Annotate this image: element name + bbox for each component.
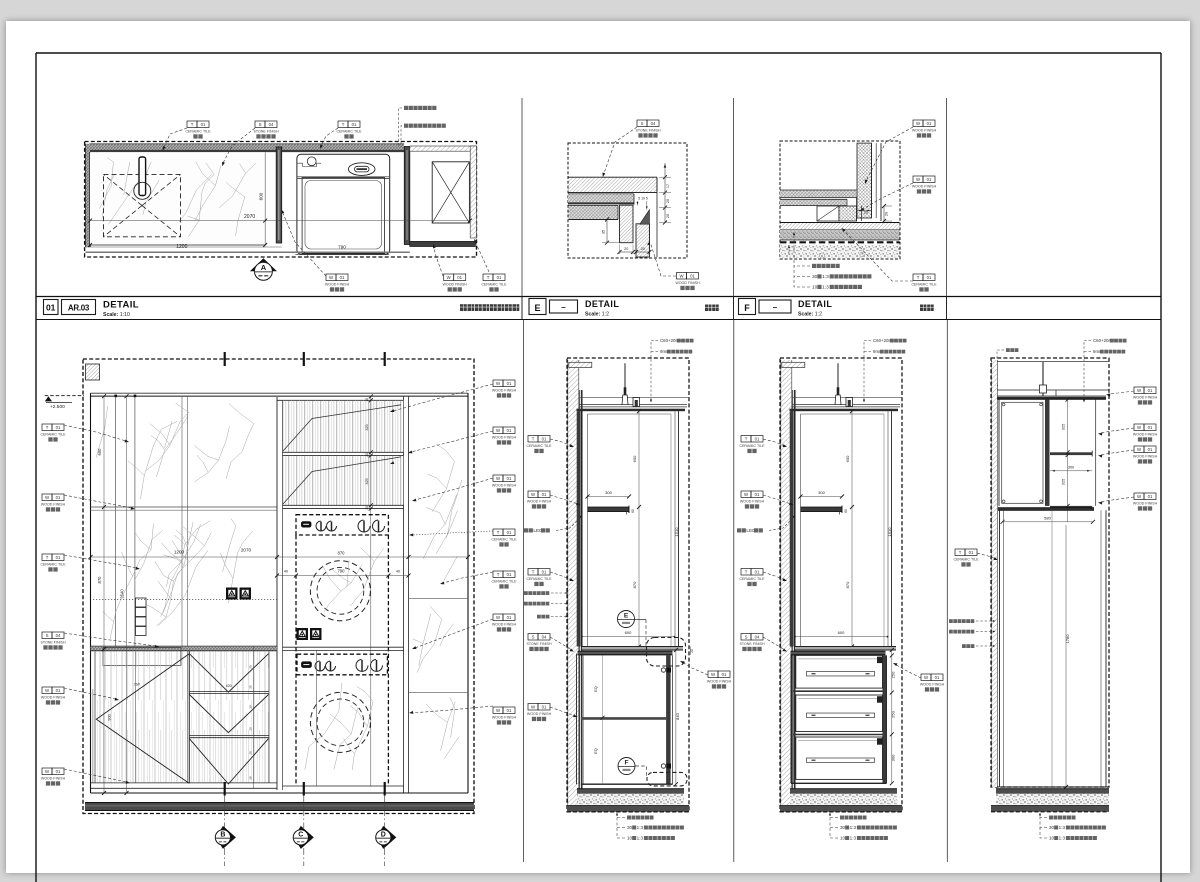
- svg-text:WOOD FINISH: WOOD FINISH: [527, 712, 552, 716]
- svg-text:60: 60: [844, 509, 848, 513]
- svg-text:CERAMIC TILE: CERAMIC TILE: [953, 557, 979, 561]
- svg-text:325: 325: [1061, 478, 1066, 485]
- svg-text:T: T: [745, 570, 748, 575]
- svg-text:Scale: 1:2: Scale: 1:2: [585, 312, 609, 318]
- svg-text:WOOD FINISH: WOOD FINISH: [912, 128, 937, 132]
- svg-text:10: 10: [627, 836, 633, 841]
- svg-text:01: 01: [1148, 494, 1153, 499]
- svg-text:WOOD FINISH: WOOD FINISH: [707, 679, 732, 683]
- svg-text:W: W: [1137, 494, 1142, 499]
- svg-text:20: 20: [666, 214, 670, 218]
- svg-text:WOOD FINISH: WOOD FINISH: [492, 715, 517, 719]
- svg-text:CERAMIC TILE: CERAMIC TILE: [526, 577, 552, 581]
- svg-text:1:3: 1:3: [1059, 836, 1066, 841]
- svg-text:W: W: [531, 492, 536, 497]
- svg-text:01: 01: [969, 550, 974, 555]
- svg-text:1:3: 1:3: [637, 836, 644, 841]
- svg-text:CERAMIC TILE: CERAMIC TILE: [185, 129, 211, 133]
- svg-text:T: T: [46, 425, 49, 430]
- svg-text:DETAIL: DETAIL: [103, 300, 139, 311]
- svg-text:B: B: [220, 832, 225, 839]
- svg-text:01: 01: [497, 275, 502, 280]
- svg-text:01: 01: [1148, 425, 1153, 430]
- svg-text:01: 01: [927, 121, 932, 126]
- svg-text:30: 30: [840, 825, 846, 830]
- svg-text:01: 01: [201, 122, 206, 127]
- svg-text:T: T: [497, 572, 500, 577]
- svg-text:10: 10: [840, 836, 846, 841]
- svg-text:D: D: [381, 832, 386, 839]
- svg-text:STONE FINISH: STONE FINISH: [40, 640, 65, 644]
- svg-text:01: 01: [507, 530, 512, 535]
- svg-text:01: 01: [722, 672, 727, 677]
- svg-text:600: 600: [259, 192, 264, 200]
- svg-text:600: 600: [838, 630, 845, 635]
- svg-text:Scale: 1:10: Scale: 1:10: [103, 312, 130, 318]
- svg-text:WOOD FINISH: WOOD FINISH: [443, 282, 468, 286]
- svg-text:WOOD FINISH: WOOD FINISH: [492, 435, 517, 439]
- svg-text:DETAIL: DETAIL: [798, 299, 832, 309]
- svg-text:STONE FINISH: STONE FINISH: [253, 129, 278, 133]
- svg-text:W: W: [744, 492, 749, 497]
- svg-text:W: W: [496, 476, 501, 481]
- svg-text:1:3: 1:3: [822, 274, 829, 280]
- svg-text:S: S: [745, 635, 748, 640]
- svg-text:F: F: [744, 303, 750, 313]
- svg-text:01: 01: [56, 688, 61, 693]
- svg-text:S: S: [641, 121, 644, 126]
- svg-text:EQ: EQ: [594, 748, 598, 754]
- svg-text:20: 20: [365, 398, 369, 402]
- svg-text:W: W: [1137, 388, 1142, 393]
- svg-text:30: 30: [1049, 825, 1055, 830]
- svg-text:420: 420: [226, 684, 232, 688]
- svg-text:01: 01: [46, 303, 56, 313]
- svg-text:W: W: [711, 672, 716, 677]
- svg-text:EQ: EQ: [594, 686, 598, 692]
- svg-text:F: F: [625, 760, 629, 767]
- svg-text:01: 01: [507, 428, 512, 433]
- svg-text:CERAMIC TILE: CERAMIC TILE: [40, 562, 66, 566]
- svg-text:01: 01: [755, 570, 760, 575]
- svg-text:W: W: [916, 121, 921, 126]
- svg-text:W: W: [531, 705, 536, 710]
- svg-text:WOOD FINISH: WOOD FINISH: [492, 622, 517, 626]
- svg-text:17: 17: [666, 184, 670, 188]
- svg-text:10: 10: [1049, 836, 1055, 841]
- svg-text:01: 01: [1148, 388, 1153, 393]
- svg-text:01: 01: [507, 572, 512, 577]
- svg-text:750: 750: [134, 682, 140, 687]
- svg-text:01: 01: [56, 425, 61, 430]
- svg-text:–: –: [773, 303, 778, 312]
- svg-text:04: 04: [755, 635, 760, 640]
- svg-text:20: 20: [248, 665, 252, 669]
- svg-text:W: W: [1137, 447, 1142, 452]
- svg-text:WOOD FINISH: WOOD FINISH: [527, 499, 552, 503]
- svg-text:W: W: [679, 274, 684, 279]
- svg-text:40: 40: [396, 570, 400, 574]
- svg-text:WOOD FINISH: WOOD FINISH: [912, 184, 937, 188]
- svg-text:840: 840: [675, 712, 680, 719]
- svg-text:20: 20: [365, 453, 369, 457]
- svg-text:01: 01: [927, 275, 932, 280]
- svg-text:W: W: [496, 615, 501, 620]
- svg-text:300: 300: [891, 754, 896, 761]
- svg-text:1:3: 1:3: [850, 825, 857, 830]
- svg-text:WOOD FINISH: WOOD FINISH: [740, 499, 765, 503]
- svg-text:01: 01: [542, 492, 547, 497]
- svg-text:900: 900: [108, 714, 112, 720]
- svg-text:580: 580: [1044, 515, 1051, 520]
- svg-text:WOOD FINISH: WOOD FINISH: [492, 388, 517, 392]
- svg-text:W: W: [1137, 425, 1142, 430]
- svg-text:20: 20: [248, 727, 252, 731]
- svg-text:WOOD FINISH: WOOD FINISH: [41, 695, 66, 699]
- svg-text:20: 20: [248, 705, 252, 709]
- svg-text:CERAMIC TILE: CERAMIC TILE: [336, 129, 362, 133]
- svg-text:250: 250: [891, 671, 896, 678]
- svg-text:T: T: [532, 570, 535, 575]
- svg-text:T: T: [487, 275, 490, 280]
- svg-text:CERAMIC TILE: CERAMIC TILE: [739, 444, 765, 448]
- svg-text:CERAMIC TILE: CERAMIC TILE: [491, 579, 517, 583]
- svg-text:300: 300: [605, 490, 612, 495]
- svg-text:T: T: [532, 437, 535, 442]
- svg-text:01: 01: [507, 708, 512, 713]
- svg-text:325: 325: [1061, 423, 1066, 430]
- svg-text:04: 04: [269, 122, 274, 127]
- svg-text:2540: 2540: [120, 589, 125, 599]
- svg-text:01: 01: [542, 705, 547, 710]
- svg-text:Scale: 1:2: Scale: 1:2: [798, 312, 822, 318]
- svg-text:W: W: [329, 275, 334, 280]
- svg-text:01: 01: [755, 492, 760, 497]
- svg-text:T: T: [342, 122, 345, 127]
- svg-text:W: W: [447, 275, 452, 280]
- svg-text:T: T: [745, 437, 748, 442]
- svg-text:04: 04: [56, 633, 61, 638]
- svg-text:01: 01: [352, 122, 357, 127]
- svg-text:WOOD FINISH: WOOD FINISH: [1133, 501, 1158, 505]
- svg-text:40: 40: [284, 570, 288, 574]
- svg-text:600: 600: [632, 455, 637, 462]
- svg-text:W: W: [496, 381, 501, 386]
- svg-text:W: W: [45, 495, 50, 500]
- svg-text:20: 20: [624, 247, 628, 251]
- svg-text:01: 01: [507, 476, 512, 481]
- svg-text:S: S: [259, 122, 262, 127]
- svg-text:325: 325: [365, 424, 369, 430]
- svg-text:WOOD FINISH: WOOD FINISH: [41, 776, 66, 780]
- svg-text:STONE FINISH: STONE FINISH: [635, 128, 660, 132]
- svg-text:W: W: [45, 769, 50, 774]
- svg-text:STONE FINISH: STONE FINISH: [526, 642, 551, 646]
- svg-text:30: 30: [627, 825, 633, 830]
- svg-text:01: 01: [56, 555, 61, 560]
- svg-text:01: 01: [927, 177, 932, 182]
- svg-text:W: W: [916, 177, 921, 182]
- svg-text:T: T: [497, 530, 500, 535]
- svg-text:300: 300: [818, 490, 825, 495]
- svg-text:W: W: [924, 675, 929, 680]
- svg-text:1:3: 1:3: [637, 825, 644, 830]
- svg-text:20: 20: [248, 776, 252, 780]
- svg-text:01: 01: [340, 275, 345, 280]
- svg-text:870: 870: [97, 576, 102, 584]
- svg-text:CERAMIC TILE: CERAMIC TILE: [526, 444, 552, 448]
- svg-text:01: 01: [755, 437, 760, 442]
- svg-text:W: W: [496, 708, 501, 713]
- svg-text:WOOD FINISH: WOOD FINISH: [325, 282, 350, 286]
- svg-text:01: 01: [690, 274, 695, 279]
- svg-text:20: 20: [365, 506, 369, 510]
- svg-text:04: 04: [542, 635, 547, 640]
- svg-text:A: A: [261, 263, 267, 272]
- svg-text:5 10 5: 5 10 5: [638, 197, 648, 201]
- svg-text:60: 60: [631, 509, 635, 513]
- svg-text:10: 10: [812, 285, 818, 291]
- svg-text:CERAMIC TILE: CERAMIC TILE: [481, 282, 507, 286]
- svg-text:20: 20: [666, 199, 670, 203]
- svg-text:01: 01: [56, 769, 61, 774]
- svg-text:WOOD FINISH: WOOD FINISH: [920, 682, 945, 686]
- svg-text:1:3: 1:3: [1059, 825, 1066, 830]
- svg-text:01: 01: [507, 615, 512, 620]
- svg-text:T: T: [46, 555, 49, 560]
- svg-text:E: E: [534, 303, 540, 313]
- svg-text:01: 01: [56, 495, 61, 500]
- svg-text:1:3: 1:3: [850, 836, 857, 841]
- svg-text:+2.500: +2.500: [50, 404, 65, 410]
- svg-text:1510: 1510: [887, 527, 892, 537]
- svg-text:T: T: [191, 122, 194, 127]
- svg-text:2070: 2070: [244, 214, 255, 220]
- svg-text:20: 20: [248, 685, 252, 689]
- svg-text:E: E: [624, 613, 629, 620]
- svg-text:870: 870: [338, 551, 346, 556]
- svg-text:WOOD FINISH: WOOD FINISH: [1133, 454, 1158, 458]
- svg-text:300: 300: [1068, 466, 1074, 470]
- svg-text:20: 20: [641, 247, 645, 251]
- svg-text:T: T: [959, 550, 962, 555]
- svg-text:600: 600: [97, 448, 102, 456]
- svg-text:01: 01: [542, 570, 547, 575]
- svg-text:35: 35: [601, 230, 605, 234]
- svg-text:1510: 1510: [674, 527, 679, 537]
- svg-text:1200: 1200: [176, 244, 187, 250]
- svg-text:790: 790: [338, 245, 346, 250]
- svg-text:790: 790: [338, 569, 346, 574]
- svg-text:01: 01: [542, 437, 547, 442]
- svg-text:W: W: [45, 688, 50, 693]
- svg-text:30: 30: [812, 274, 818, 280]
- svg-text:1:3: 1:3: [822, 285, 829, 291]
- svg-text:C: C: [298, 832, 303, 839]
- svg-text:01: 01: [1148, 447, 1153, 452]
- svg-text:20: 20: [885, 212, 889, 216]
- svg-text:–: –: [561, 303, 566, 312]
- svg-text:04: 04: [651, 121, 656, 126]
- svg-text:STONE FINISH: STONE FINISH: [739, 642, 764, 646]
- svg-text:01: 01: [457, 275, 462, 280]
- svg-text:600: 600: [845, 455, 850, 462]
- svg-text:01: 01: [507, 381, 512, 386]
- svg-text:WOOD FINISH: WOOD FINISH: [1133, 395, 1158, 399]
- svg-text:01: 01: [935, 675, 940, 680]
- svg-text:1200: 1200: [174, 550, 185, 555]
- svg-text:870: 870: [845, 581, 850, 588]
- svg-text:870: 870: [632, 581, 637, 588]
- svg-text:AR.03: AR.03: [68, 304, 90, 313]
- svg-text:WOOD FINISH: WOOD FINISH: [41, 502, 66, 506]
- svg-text:W: W: [496, 428, 501, 433]
- svg-text:S: S: [532, 635, 535, 640]
- svg-text:WOOD FINISH: WOOD FINISH: [1133, 432, 1158, 436]
- svg-text:325: 325: [365, 478, 369, 484]
- svg-text:250: 250: [891, 710, 896, 717]
- svg-text:WOOD FINISH: WOOD FINISH: [492, 483, 517, 487]
- svg-text:600: 600: [625, 630, 632, 635]
- svg-text:20: 20: [248, 751, 252, 755]
- svg-text:S: S: [46, 633, 49, 638]
- svg-text:2070: 2070: [241, 548, 252, 553]
- svg-text:WOOD FINISH: WOOD FINISH: [675, 281, 700, 285]
- svg-text:CERAMIC TILE: CERAMIC TILE: [739, 577, 765, 581]
- svg-text:CERAMIC TILE: CERAMIC TILE: [40, 432, 66, 436]
- svg-text:T: T: [917, 275, 920, 280]
- svg-text:CERAMIC TILE: CERAMIC TILE: [911, 282, 937, 286]
- svg-text:DETAIL: DETAIL: [585, 299, 619, 309]
- svg-text:CERAMIC TILE: CERAMIC TILE: [491, 537, 517, 541]
